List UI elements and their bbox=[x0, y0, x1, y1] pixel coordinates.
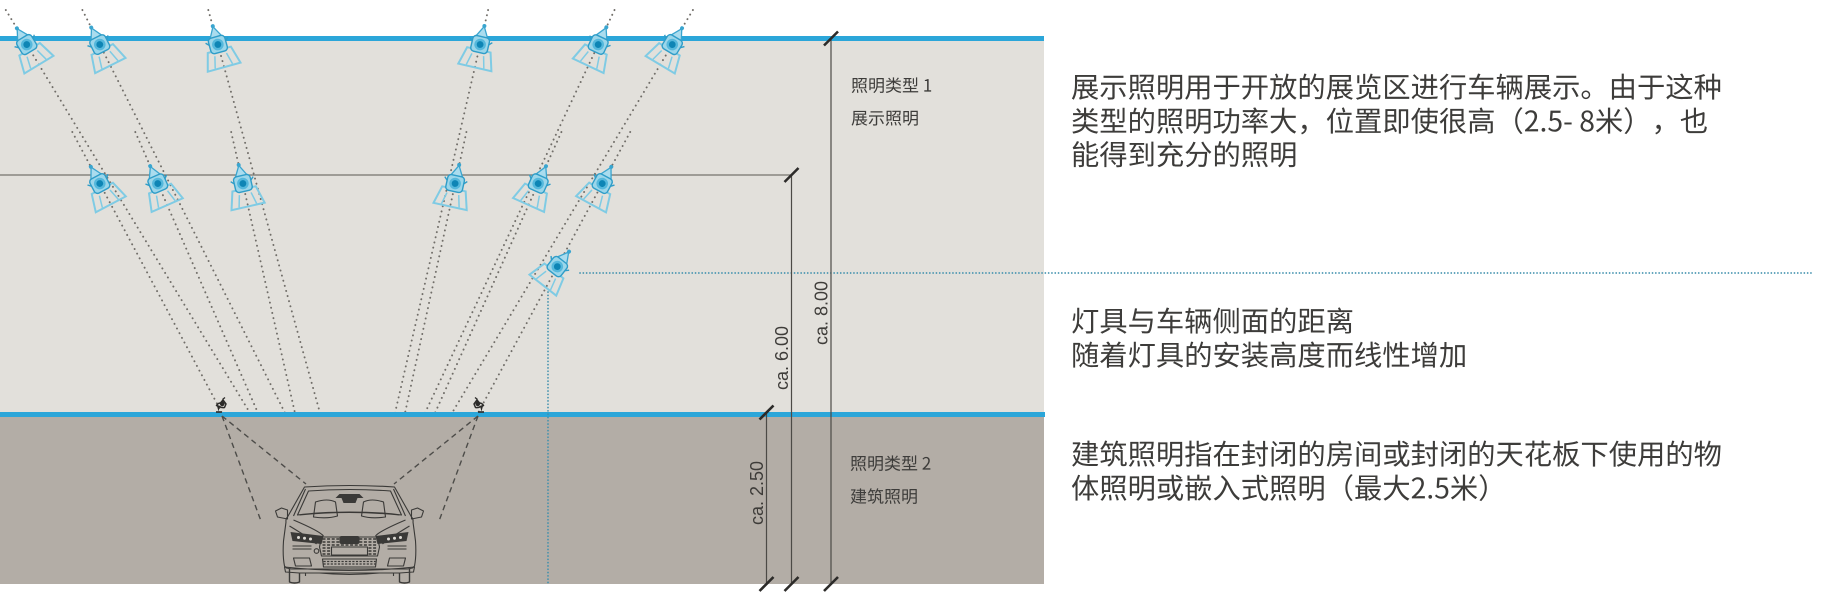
svg-text:ca. 6.00: ca. 6.00 bbox=[772, 326, 792, 390]
svg-text:ca. 8.00: ca. 8.00 bbox=[812, 281, 832, 345]
svg-text:ca. 2.50: ca. 2.50 bbox=[747, 461, 767, 525]
